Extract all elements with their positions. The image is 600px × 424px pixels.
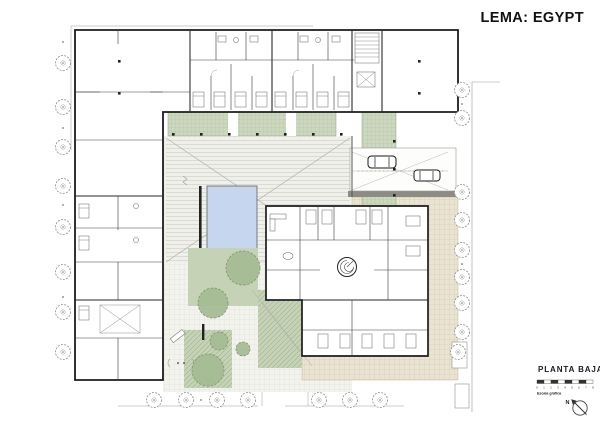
- scale-bar: [537, 380, 593, 384]
- tree-icon: [455, 270, 470, 285]
- tree-icon: [56, 179, 71, 194]
- tree-icon: [147, 393, 162, 408]
- svg-text:3: 3: [557, 386, 559, 390]
- plan-name-label: PLANTA BAJA: [538, 365, 600, 374]
- pool: [207, 186, 257, 256]
- tree-icon: [455, 325, 470, 340]
- tree-icon: [373, 393, 388, 408]
- tree-icon: [56, 140, 71, 155]
- legend: PLANTA BAJA 0 1 2 3 4 5 6 7 8 Escala grá…: [536, 365, 600, 415]
- tree-icon: [455, 83, 470, 98]
- tree-icon: [56, 305, 71, 320]
- tree-icon: [236, 342, 250, 356]
- svg-text:8: 8: [592, 386, 594, 390]
- tree-icon: [56, 265, 71, 280]
- pool-wall: [199, 186, 202, 256]
- garden-wall: [202, 324, 204, 340]
- page-title: LEMA: EGYPT: [481, 10, 585, 26]
- spiral-stair: [338, 258, 357, 277]
- svg-text:2: 2: [550, 386, 552, 390]
- parking-area: [348, 148, 458, 197]
- svg-text:0: 0: [536, 386, 538, 390]
- north-label: N: [566, 400, 570, 406]
- tree-icon: [210, 332, 228, 350]
- curb-band: [348, 191, 458, 197]
- entry-ramp: [455, 384, 469, 408]
- svg-text:7: 7: [585, 386, 587, 390]
- svg-text:6: 6: [578, 386, 580, 390]
- tree-icon: [56, 345, 71, 360]
- tree-icon: [198, 288, 228, 318]
- tree-icon: [210, 393, 225, 408]
- svg-text:1: 1: [543, 386, 545, 390]
- tree-icon: [455, 296, 470, 311]
- car-icon: [414, 170, 440, 181]
- tree-icon: [56, 100, 71, 115]
- tree-icon: [455, 111, 470, 126]
- drawing-sheet: LEMA: EGYPT PLANTA BAJA 0 1 2 3 4 5 6 7 …: [0, 0, 600, 424]
- scale-caption: Escala gráfica: [537, 392, 562, 396]
- tree-icon: [56, 56, 71, 71]
- svg-text:4: 4: [564, 386, 566, 390]
- tree-icon: [192, 354, 224, 386]
- tree-icon: [241, 393, 256, 408]
- north-compass-icon: N: [566, 399, 588, 415]
- tree-icon: [179, 393, 194, 408]
- car-icon: [368, 156, 396, 168]
- scale-ticks: 0 1 2 3 4 5 6 7 8: [536, 386, 594, 390]
- tree-icon: [455, 243, 470, 258]
- tree-icon: [455, 185, 470, 200]
- tree-icon: [343, 393, 358, 408]
- tree-icon: [56, 220, 71, 235]
- site-plan: LEMA: EGYPT PLANTA BAJA 0 1 2 3 4 5 6 7 …: [0, 0, 600, 424]
- svg-text:5: 5: [571, 386, 573, 390]
- tree-icon: [451, 345, 466, 360]
- tree-icon: [312, 393, 327, 408]
- tree-icon: [455, 213, 470, 228]
- tree-icon: [226, 251, 260, 285]
